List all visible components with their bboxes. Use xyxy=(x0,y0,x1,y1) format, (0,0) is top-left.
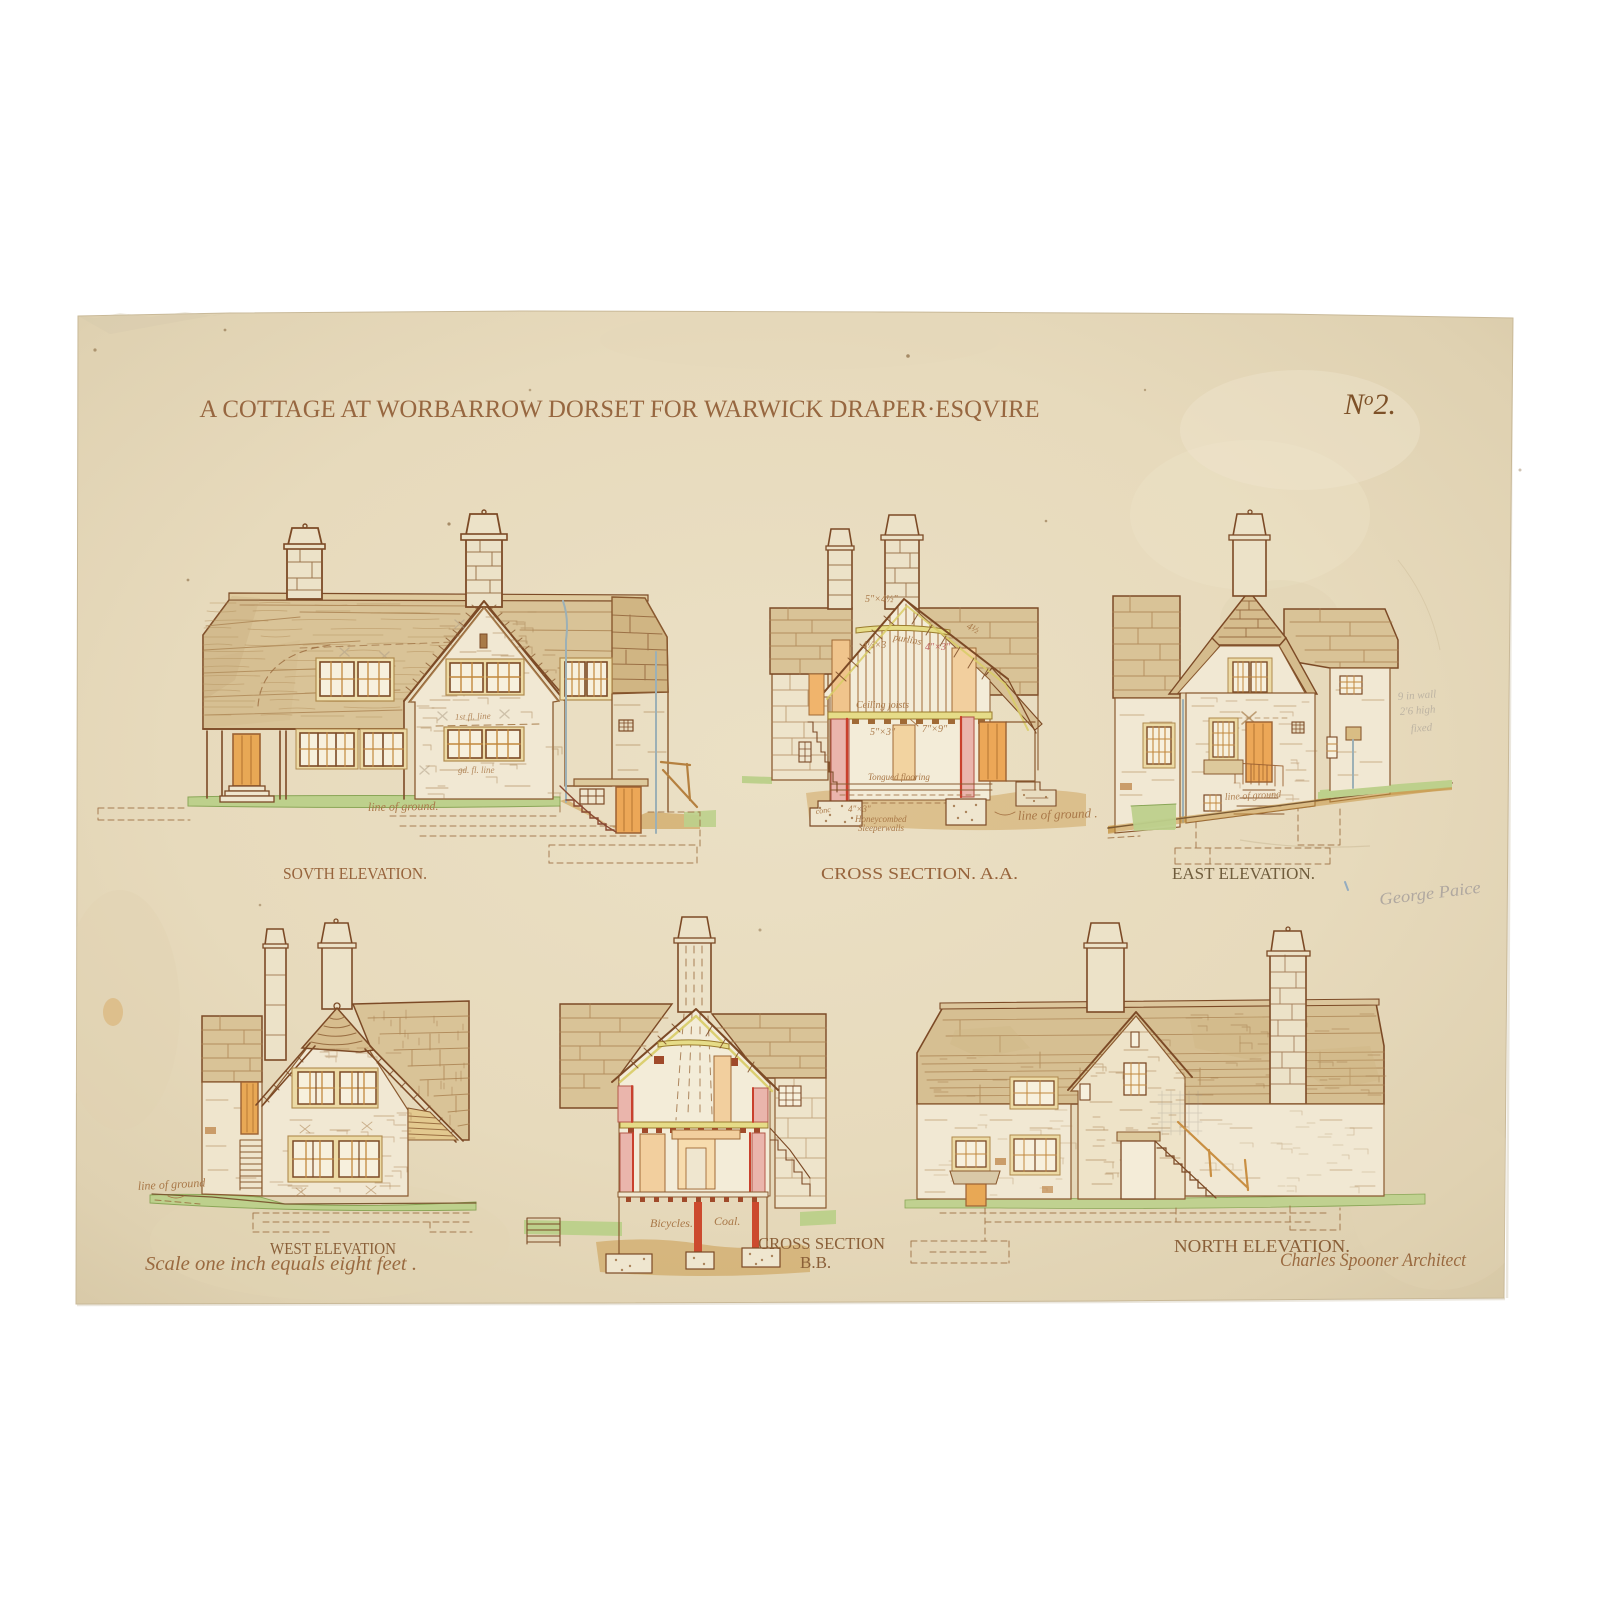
svg-text:Charles Spooner Architect: Charles Spooner Architect xyxy=(1280,1250,1467,1271)
svg-text:4½×3: 4½×3 xyxy=(862,640,886,651)
svg-text:CROSS SECTION: CROSS SECTION xyxy=(758,1234,885,1253)
svg-text:5"×3": 5"×3" xyxy=(870,727,896,738)
svg-text:4"×3": 4"×3" xyxy=(925,642,951,653)
svg-text:Sleeperwalls: Sleeperwalls xyxy=(858,823,904,833)
svg-text:1st fl. line: 1st fl. line xyxy=(455,711,491,722)
svg-text:fixed: fixed xyxy=(1410,721,1433,734)
svg-text:Tongued flooring: Tongued flooring xyxy=(868,772,930,782)
svg-text:line of ground.: line of ground. xyxy=(368,799,439,814)
svg-text:Ceiling joists: Ceiling joists xyxy=(856,700,909,711)
svg-text:EAST ELEVATION.: EAST ELEVATION. xyxy=(1172,864,1315,883)
svg-text:4"×3": 4"×3" xyxy=(848,804,871,814)
svg-text:CROSS SECTION. A.A.: CROSS SECTION. A.A. xyxy=(821,864,1018,883)
svg-text:5"×4½": 5"×4½" xyxy=(865,594,898,605)
svg-text:Scale one inch equals eight fe: Scale one inch equals eight feet . xyxy=(145,1253,417,1275)
svg-text:line of ground .: line of ground . xyxy=(1018,805,1098,823)
svg-text:SOVTH ELEVATION.: SOVTH ELEVATION. xyxy=(283,864,427,883)
svg-text:Bicycles.: Bicycles. xyxy=(650,1216,693,1230)
svg-text:2'6 high: 2'6 high xyxy=(1399,703,1436,717)
svg-text:B.B.: B.B. xyxy=(800,1253,831,1272)
svg-text:7"×9": 7"×9" xyxy=(922,724,948,735)
svg-text:A COTTAGE AT WORBARROW DORSET: A COTTAGE AT WORBARROW DORSET FOR WARWIC… xyxy=(199,396,1040,423)
svg-text:Coal.: Coal. xyxy=(714,1214,740,1228)
svg-text:gd. fl. line: gd. fl. line xyxy=(458,765,495,775)
